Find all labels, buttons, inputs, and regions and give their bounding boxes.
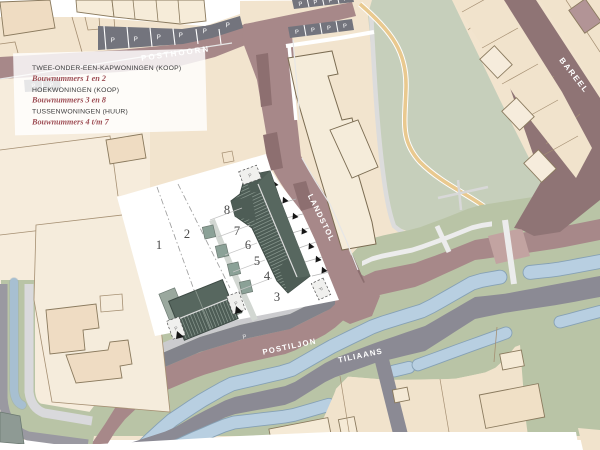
svg-text:Bouwnummers 3 en 8: Bouwnummers 3 en 8 — [31, 96, 106, 105]
svg-text:P: P — [178, 32, 183, 39]
svg-text:6: 6 — [245, 238, 251, 252]
svg-text:P: P — [295, 29, 300, 36]
svg-text:4: 4 — [264, 269, 271, 283]
svg-text:P: P — [133, 36, 138, 43]
svg-text:7: 7 — [234, 224, 240, 238]
svg-text:HOEKWONINGEN (KOOP): HOEKWONINGEN (KOOP) — [32, 87, 119, 94]
svg-text:P: P — [225, 22, 230, 29]
svg-text:TWEE-ONDER-EEN-KAPWONINGEN (KO: TWEE-ONDER-EEN-KAPWONINGEN (KOOP) — [32, 65, 181, 72]
svg-text:2: 2 — [184, 227, 190, 241]
svg-text:P: P — [298, 2, 303, 9]
svg-text:1: 1 — [156, 238, 162, 252]
svg-text:5: 5 — [254, 254, 260, 268]
svg-text:3: 3 — [274, 290, 280, 304]
svg-text:P: P — [328, 0, 333, 5]
svg-text:Bouwnummers 4 t/m 7: Bouwnummers 4 t/m 7 — [31, 118, 110, 127]
svg-text:P: P — [110, 37, 115, 44]
svg-text:Bouwnummers 1 en 2: Bouwnummers 1 en 2 — [31, 74, 106, 83]
svg-text:P: P — [343, 23, 348, 30]
svg-text:P: P — [156, 34, 161, 41]
svg-text:P: P — [327, 25, 332, 32]
svg-text:P: P — [313, 0, 318, 6]
svg-text:P: P — [202, 28, 207, 35]
svg-text:P: P — [311, 27, 316, 34]
svg-text:8: 8 — [224, 203, 230, 217]
svg-text:TUSSENWONINGEN (HUUR): TUSSENWONINGEN (HUUR) — [32, 109, 128, 116]
